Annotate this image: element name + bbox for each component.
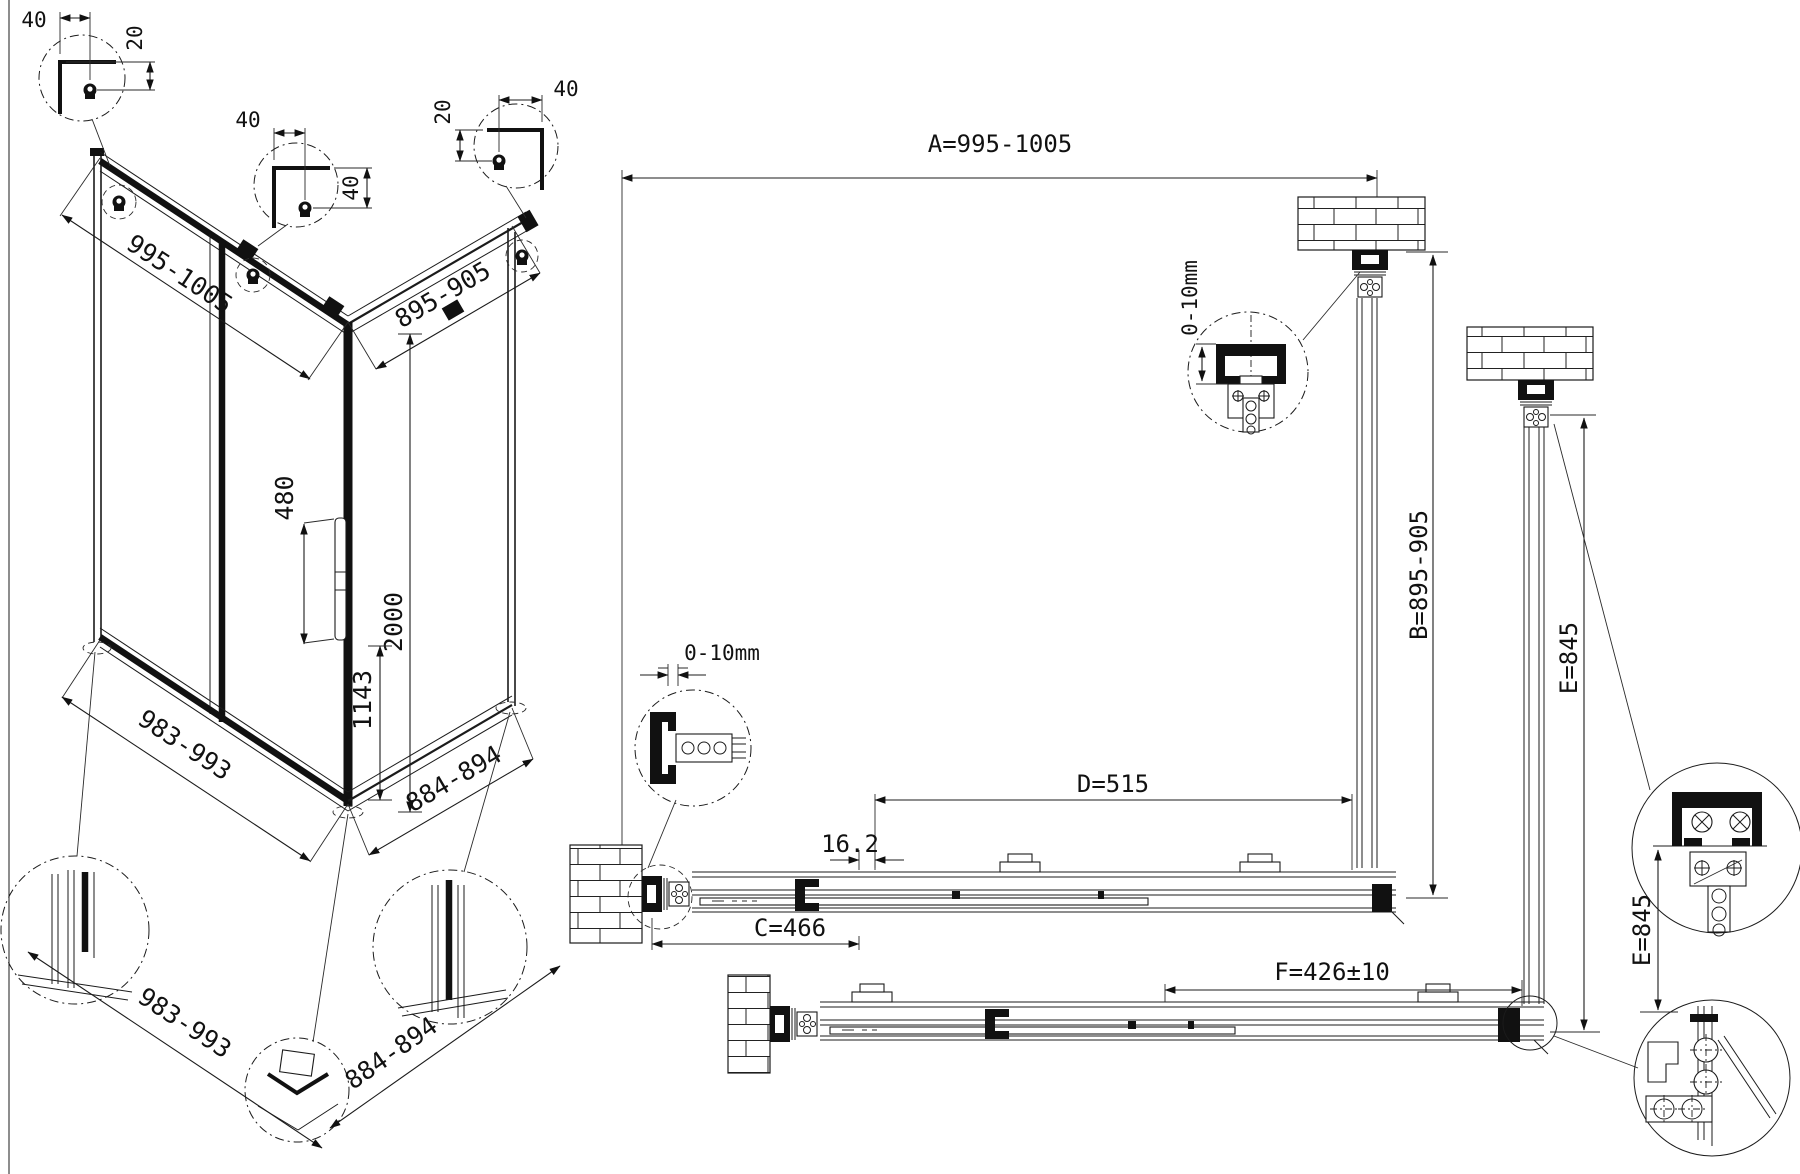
- iso-dim-height-label: 2000: [379, 592, 408, 652]
- roller-cap: [1008, 854, 1032, 862]
- corner-bracket: [1372, 884, 1392, 912]
- glass-hole-icon: [299, 202, 312, 218]
- detail-a-offset-label: 20: [123, 25, 147, 50]
- wall-section-top: [1298, 197, 1425, 250]
- iso-dim-handle-height-label: 1143: [348, 670, 377, 730]
- roller-cap: [860, 984, 884, 992]
- detail-c-offset-label: 20: [431, 99, 455, 124]
- iso-dim-handle-label: 480: [270, 475, 299, 520]
- wall-section-left: [570, 845, 642, 943]
- plan-dim-d-label: D=515: [1077, 770, 1149, 798]
- wall-section-right: [1467, 327, 1593, 380]
- sliding-glass-door: [830, 1027, 1235, 1034]
- paper-background: [0, 0, 1800, 1174]
- plan-dim-f-label: F=426±10: [1274, 958, 1390, 986]
- plan-dim-c-label: C=466: [754, 914, 826, 942]
- drawing-canvas: 995-1005 895-905 480 2000 1143 983-993 8…: [0, 0, 1800, 1174]
- roller-carriage: [852, 992, 892, 1002]
- plan-dim-gap2-label: 0-10mm: [684, 641, 760, 665]
- plan-dim-b-label: B=895-905: [1405, 510, 1433, 640]
- roller-carriage: [1240, 862, 1280, 872]
- plan-dim-e1-label: E=845: [1555, 622, 1583, 694]
- roller-carriage: [1418, 992, 1458, 1002]
- plan-dim-a-label: A=995-1005: [928, 130, 1073, 158]
- detail-c-width-label: 40: [553, 77, 578, 101]
- detail-a-width-label: 40: [21, 8, 46, 32]
- glass-hole-icon: [113, 196, 126, 212]
- detail-b-width-label: 40: [235, 108, 260, 132]
- corner-bracket: [1498, 1008, 1520, 1042]
- glass-hole-icon: [247, 269, 260, 285]
- door-handle: [335, 518, 346, 640]
- sliding-glass-door: [700, 898, 1148, 905]
- plan-dim-gap1-label: 0-10mm: [1178, 260, 1202, 336]
- glass-hole-icon: [84, 84, 97, 100]
- glass-hole-icon: [493, 155, 506, 171]
- wall-section-bottom: [728, 975, 770, 1073]
- plan-dim-e2-label: E=845: [1628, 894, 1656, 966]
- glass-hole-icon: [516, 250, 529, 266]
- plan-dim-t-label: 16.2: [821, 830, 879, 858]
- left-post-cap: [90, 148, 104, 156]
- roller-carriage: [1000, 862, 1040, 872]
- roller-cap: [1248, 854, 1272, 862]
- roller-cap: [1426, 984, 1450, 992]
- installation-drawing-page: 995-1005 895-905 480 2000 1143 983-993 8…: [0, 0, 1800, 1174]
- detail-b-height-label: 40: [339, 175, 363, 200]
